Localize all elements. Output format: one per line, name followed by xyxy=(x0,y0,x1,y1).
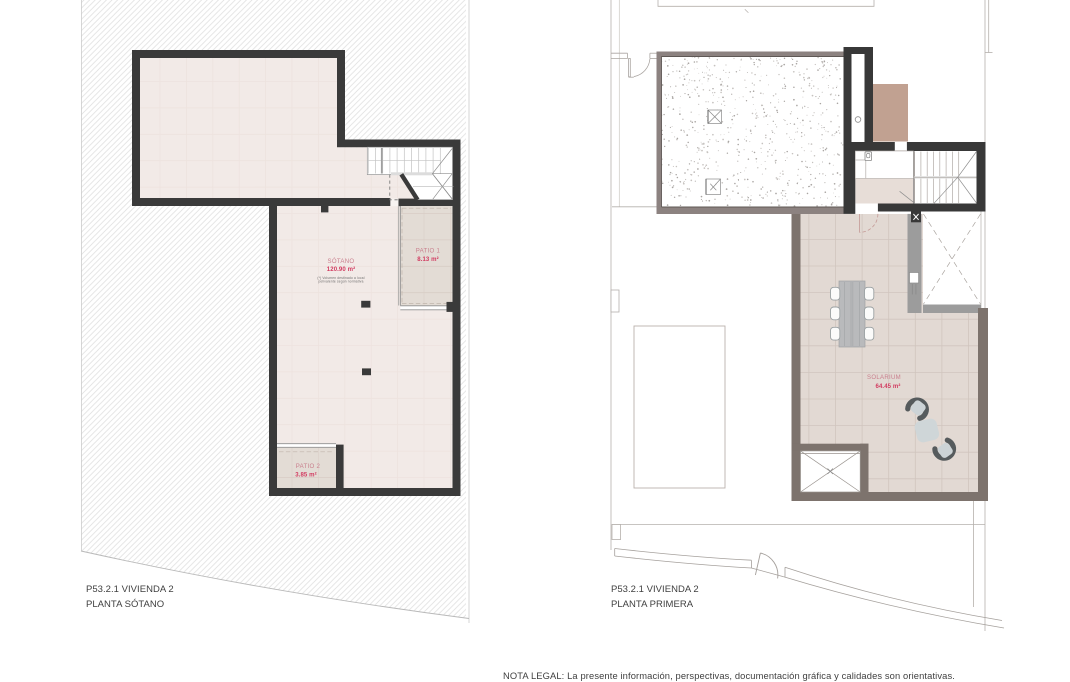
svg-text:NOTA LEGAL: La presente inform: NOTA LEGAL: La presente información, per… xyxy=(503,671,955,681)
svg-text:PATIO 1: PATIO 1 xyxy=(416,249,441,255)
svg-text:120.90 m²: 120.90 m² xyxy=(327,266,355,273)
svg-text:polivalente según normativa: polivalente según normativa xyxy=(318,280,363,284)
svg-text:64.45 m²: 64.45 m² xyxy=(875,383,900,390)
svg-text:PLANTA SÓTANO: PLANTA SÓTANO xyxy=(86,599,164,610)
svg-text:SÓTANO: SÓTANO xyxy=(328,258,355,265)
svg-text:8.13 m²: 8.13 m² xyxy=(417,256,439,263)
svg-text:3.85 m²: 3.85 m² xyxy=(295,472,317,479)
svg-text:P53.2.1 VIVIENDA 2: P53.2.1 VIVIENDA 2 xyxy=(611,584,699,595)
svg-text:PATIO 2: PATIO 2 xyxy=(296,464,321,470)
svg-text:SOLARIUM: SOLARIUM xyxy=(867,375,901,381)
svg-text:PLANTA PRIMERA: PLANTA PRIMERA xyxy=(611,599,694,610)
svg-text:P53.2.1 VIVIENDA 2: P53.2.1 VIVIENDA 2 xyxy=(86,584,174,595)
